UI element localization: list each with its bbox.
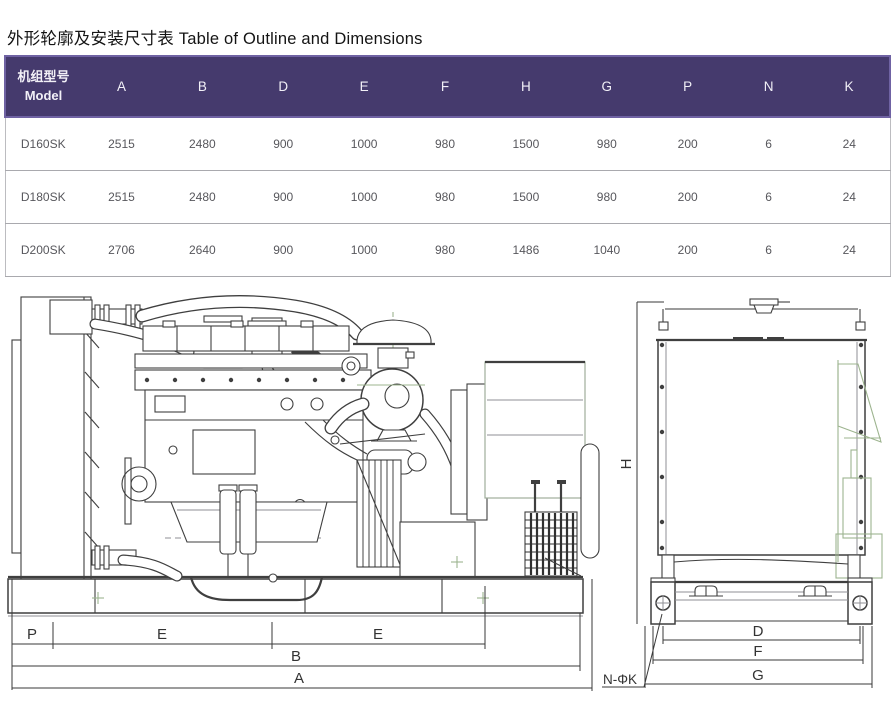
value-cell: 2480 <box>162 171 243 224</box>
value-cell: 6 <box>728 117 809 171</box>
dim-label-e2: E <box>373 626 383 643</box>
callout-label-nk: N-ΦK <box>603 672 637 687</box>
column-header-A: A <box>81 56 162 117</box>
value-cell: 1000 <box>324 117 405 171</box>
drawings-area: P E E B A H <box>0 292 894 704</box>
value-cell: 980 <box>566 117 647 171</box>
column-header-model-zh: 机组型号 <box>7 68 80 87</box>
value-cell: 6 <box>728 171 809 224</box>
model-cell: D160SK <box>5 117 81 171</box>
value-cell: 1040 <box>566 224 647 277</box>
column-header-B: B <box>162 56 243 117</box>
value-cell: 200 <box>647 224 728 277</box>
table-row: D160SK 2515 2480 900 1000 980 1500 980 2… <box>5 117 890 171</box>
value-cell: 1000 <box>324 171 405 224</box>
value-cell: 2640 <box>162 224 243 277</box>
column-header-F: F <box>405 56 486 117</box>
value-cell: 24 <box>809 224 890 277</box>
dim-label-d: D <box>753 623 764 640</box>
dim-label-b: B <box>291 648 301 665</box>
dim-label-h: H <box>618 459 635 470</box>
louvered-panel <box>357 460 401 567</box>
column-header-model-en: Model <box>7 87 80 106</box>
value-cell: 24 <box>809 171 890 224</box>
model-cell: D200SK <box>5 224 81 277</box>
column-header-G: G <box>566 56 647 117</box>
column-header-H: H <box>485 56 566 117</box>
dim-label-g: G <box>752 667 764 684</box>
end-panel <box>656 337 867 555</box>
radiator <box>12 297 142 583</box>
column-header-N: N <box>728 56 809 117</box>
page-title: 外形轮廓及安装尺寸表 Table of Outline and Dimensio… <box>7 25 423 49</box>
column-header-model: 机组型号 Model <box>5 56 81 117</box>
value-cell: 2515 <box>81 171 162 224</box>
value-cell: 1000 <box>324 224 405 277</box>
value-cell: 900 <box>243 224 324 277</box>
value-cell: 980 <box>566 171 647 224</box>
value-cell: 2706 <box>81 224 162 277</box>
flywheel-housing <box>451 384 487 520</box>
column-header-K: K <box>809 56 890 117</box>
dimensions-table: 机组型号 Model A B D E F H G P N K D160SK 25… <box>4 55 891 277</box>
value-cell: 980 <box>405 224 486 277</box>
bolt-hole-callout: N-ΦK <box>602 614 662 687</box>
table-row: D200SK 2706 2640 900 1000 980 1486 1040 … <box>5 224 890 277</box>
side-view-drawing: P E E B A <box>5 292 625 696</box>
end-view-drawing: H <box>600 292 894 696</box>
value-cell: 1500 <box>485 117 566 171</box>
end-base <box>651 555 872 624</box>
top-edge <box>659 299 865 330</box>
air-cleaner-cap <box>357 320 431 344</box>
base-frame <box>8 558 583 616</box>
value-cell: 1500 <box>485 171 566 224</box>
table-header: 机组型号 Model A B D E F H G P N K <box>5 56 890 117</box>
blower-volute <box>361 369 423 431</box>
value-cell: 24 <box>809 117 890 171</box>
value-cell: 980 <box>405 171 486 224</box>
column-header-D: D <box>243 56 324 117</box>
vent-grille <box>525 512 577 576</box>
value-cell: 980 <box>405 117 486 171</box>
value-cell: 200 <box>647 171 728 224</box>
dim-label-a: A <box>294 670 304 687</box>
column-header-E: E <box>324 56 405 117</box>
value-cell: 2515 <box>81 117 162 171</box>
dim-label-p: P <box>27 626 37 643</box>
value-cell: 2480 <box>162 117 243 171</box>
spec-sheet-page: 外形轮廓及安装尺寸表 Table of Outline and Dimensio… <box>0 0 894 722</box>
value-cell: 1486 <box>485 224 566 277</box>
value-cell: 200 <box>647 117 728 171</box>
dim-label-e1: E <box>157 626 167 643</box>
fuel-fill-cap <box>269 574 277 582</box>
value-cell: 900 <box>243 171 324 224</box>
dim-label-f: F <box>753 643 762 660</box>
height-dimension: H <box>618 302 664 624</box>
column-header-P: P <box>647 56 728 117</box>
value-cell: 6 <box>728 224 809 277</box>
table-row: D180SK 2515 2480 900 1000 980 1500 980 2… <box>5 171 890 224</box>
end-dimensions: D F G <box>645 623 872 688</box>
value-cell: 900 <box>243 117 324 171</box>
model-cell: D180SK <box>5 171 81 224</box>
filler-cap <box>750 299 778 305</box>
